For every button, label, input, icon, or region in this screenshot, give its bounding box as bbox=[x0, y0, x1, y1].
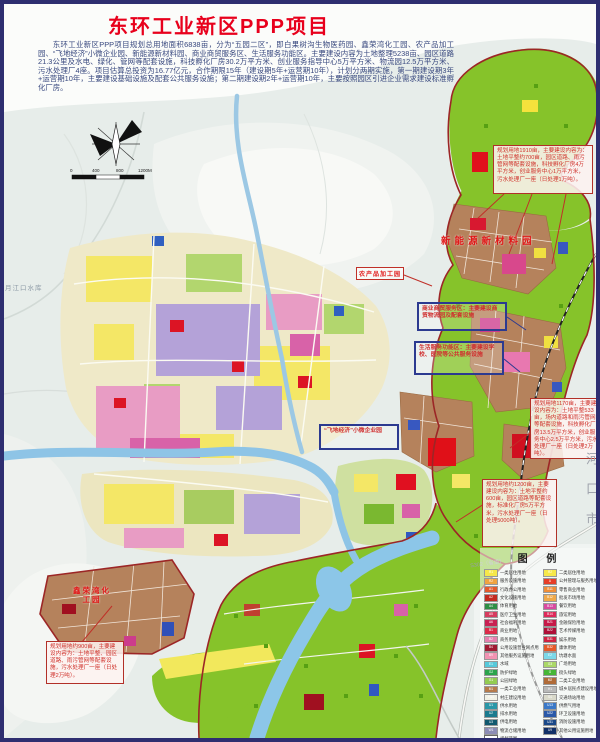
legend-item: M2二类工业用地 bbox=[543, 677, 598, 685]
legend-item: R1一类居住用地 bbox=[484, 569, 539, 577]
scale-tick-800: 800 bbox=[116, 168, 124, 173]
scale-tick-1200: 1200M bbox=[138, 168, 152, 173]
legend-item: E1水域 bbox=[484, 660, 539, 668]
legend-label: 供电用地 bbox=[500, 719, 517, 725]
legend-item: A1行政办公用地 bbox=[484, 586, 539, 594]
legend-item: A6社会福利用地 bbox=[484, 619, 539, 627]
legend-label: 文化设施用地 bbox=[500, 595, 526, 601]
legend-label: 城乡居民点建设用地 bbox=[559, 686, 598, 692]
label-city-vertical: 河口市 bbox=[582, 452, 600, 542]
legend-label: 公用设施营业网点用地 bbox=[500, 645, 539, 651]
legend-label: 交通场站用地 bbox=[559, 695, 585, 701]
legend-label: 社会福利用地 bbox=[500, 620, 526, 626]
legend-swatch: G1 bbox=[484, 677, 498, 685]
legend-swatch: A4 bbox=[484, 603, 498, 611]
legend-swatch: R1 bbox=[484, 569, 498, 577]
legend-label: 其他公用设施用地 bbox=[559, 728, 593, 734]
legend-label: 规划范围 bbox=[500, 736, 517, 742]
legend-swatch: U22 bbox=[543, 710, 557, 718]
legend-item: B22艺术传媒用地 bbox=[543, 627, 598, 635]
legend-item: R2服务设施用地 bbox=[484, 577, 539, 585]
legend-label: 环卫设施用地 bbox=[559, 711, 585, 717]
label-new-energy-park: 新能源新材料园 bbox=[441, 233, 536, 247]
legend: 图 例 R1一类居住用地R2服务设施用地A1行政办公用地A2文化设施用地A4体育… bbox=[484, 550, 598, 742]
legend-label: 行政办公用地 bbox=[500, 587, 526, 593]
legend-swatch: A6 bbox=[484, 619, 498, 627]
planning-map-page: 东环工业新区PPP项目 东环工业新区PPP项目规划总用地面积6838亩，分为“五… bbox=[0, 0, 600, 742]
legend-label: 供水用地 bbox=[500, 703, 517, 709]
annotation-commerce-zone: 商业商贸服务区：主要建设商贸物流园及配套设施 bbox=[417, 302, 507, 331]
legend-swatch: B4 bbox=[484, 644, 498, 652]
legend-swatch: U9 bbox=[543, 727, 557, 735]
legend-swatch: M2 bbox=[543, 677, 557, 685]
legend-swatch: A bbox=[543, 578, 557, 586]
scale-tick-0: 0 bbox=[70, 168, 73, 173]
legend-item: B12批发市场用地 bbox=[543, 594, 598, 602]
legend-swatch: U2 bbox=[484, 710, 498, 718]
legend-swatch: B31 bbox=[543, 636, 557, 644]
legend-swatch: H1 bbox=[543, 686, 557, 694]
legend-swatch: U13 bbox=[543, 702, 557, 710]
legend-label: 批发市场用地 bbox=[559, 595, 585, 601]
legend-label: 餐饮用地 bbox=[559, 603, 576, 609]
legend-column-left: R1一类居住用地R2服务设施用地A1行政办公用地A2文化设施用地A4体育用地A5… bbox=[484, 569, 539, 742]
legend-label: 坑塘水面 bbox=[559, 653, 576, 659]
legend-swatch: B32 bbox=[543, 644, 557, 652]
legend-item: U31消防设施用地 bbox=[543, 718, 598, 726]
legend-label: 物流仓储用地 bbox=[500, 728, 526, 734]
label-reservoir: 月江口水库 bbox=[5, 282, 43, 292]
legend-item: B2商务用地 bbox=[484, 635, 539, 643]
legend-swatch: B2 bbox=[484, 636, 498, 644]
legend-item: A公共管理与服务用地 bbox=[543, 577, 598, 585]
legend-item: G2防护绿地 bbox=[484, 669, 539, 677]
legend-item: U22环卫设施用地 bbox=[543, 710, 598, 718]
legend-label: 排水用地 bbox=[500, 711, 517, 717]
page-title: 东环工业新区PPP项目 bbox=[4, 10, 434, 39]
legend-swatch: H14 bbox=[484, 694, 498, 702]
legend-label: 康体用地 bbox=[559, 645, 576, 651]
legend-item: B32康体用地 bbox=[543, 644, 598, 652]
project-description: 东环工业新区PPP项目规划总用地面积6838亩，分为“五园二区”，即白果树沟生物… bbox=[38, 41, 454, 93]
legend-label: 旅馆用地 bbox=[559, 612, 576, 618]
legend-swatch: B13 bbox=[543, 603, 557, 611]
legend-item: R2二类居住用地 bbox=[543, 569, 598, 577]
legend-swatch: G2 bbox=[484, 669, 498, 677]
legend-swatch: G3 bbox=[543, 661, 557, 669]
legend-swatch: B22 bbox=[543, 627, 557, 635]
callout-east-park: 规划用地1170亩，主要建设内容为：土地平整533亩，场内道路和雨污管网等配套设… bbox=[530, 398, 600, 459]
legend-label: 供燃气用地 bbox=[559, 703, 580, 709]
legend-swatch: B1 bbox=[484, 627, 498, 635]
legend-swatch: E1 bbox=[484, 661, 498, 669]
legend-swatch: R2 bbox=[543, 569, 557, 577]
legend-swatch: A2 bbox=[484, 594, 498, 602]
legend-item: B4公用设施营业网点用地 bbox=[484, 644, 539, 652]
legend-label: 医疗卫生用地 bbox=[500, 612, 526, 618]
scale-bar bbox=[72, 175, 144, 179]
legend-item: B13餐饮用地 bbox=[543, 602, 598, 610]
legend-swatch: M1 bbox=[484, 686, 498, 694]
legend-swatch: B14 bbox=[543, 611, 557, 619]
legend-label: 商业用地 bbox=[500, 628, 517, 634]
legend-item: H1城乡居民点建设用地 bbox=[543, 685, 598, 693]
legend-swatch: W1 bbox=[484, 727, 498, 735]
callout-biomed-park: 规划用地1910亩，主要建设内容为：土地平整约700亩，园区道路、雨污管网等配套… bbox=[493, 145, 593, 194]
legend-item: B1商业用地 bbox=[484, 627, 539, 635]
legend-item: A4体育用地 bbox=[484, 602, 539, 610]
legend-item: S4交通场站用地 bbox=[543, 693, 598, 701]
legend-item: A2文化设施用地 bbox=[484, 594, 539, 602]
legend-swatch: B12 bbox=[543, 594, 557, 602]
legend-label: 一类工业用地 bbox=[500, 686, 526, 692]
legend-item: U9其他公用设施用地 bbox=[543, 727, 598, 735]
scale-tick-400: 400 bbox=[92, 168, 100, 173]
legend-label: 水域 bbox=[500, 661, 509, 667]
legend-swatch: B21 bbox=[543, 619, 557, 627]
legend-item: E2坑塘水面 bbox=[543, 652, 598, 660]
legend-item: B21金融保险用地 bbox=[543, 619, 598, 627]
legend-swatch: R2 bbox=[484, 578, 498, 586]
legend-label: 艺术传媒用地 bbox=[559, 628, 585, 634]
legend-label: 广场用地 bbox=[559, 661, 576, 667]
legend-item: U13供燃气用地 bbox=[543, 702, 598, 710]
legend-swatch: S4 bbox=[543, 694, 557, 702]
legend-label: 服务设施用地 bbox=[500, 578, 526, 584]
legend-swatch: E2 bbox=[543, 652, 557, 660]
legend-swatch: A5 bbox=[484, 611, 498, 619]
legend-item: M1一类工业用地 bbox=[484, 685, 539, 693]
legend-item: B31娱乐用地 bbox=[543, 635, 598, 643]
legend-item: G3广场用地 bbox=[543, 660, 598, 668]
legend-swatch bbox=[484, 735, 498, 742]
legend-label: 娱乐用地 bbox=[559, 637, 576, 643]
legend-item: G1公园绿地 bbox=[484, 677, 539, 685]
legend-label: 金融保险用地 bbox=[559, 620, 585, 626]
legend-label: 一类居住用地 bbox=[500, 570, 526, 576]
legend-item: B11零售商业用地 bbox=[543, 586, 598, 594]
legend-label: 村庄建设用地 bbox=[500, 695, 526, 701]
legend-label: 街头绿地 bbox=[559, 670, 576, 676]
annotation-living-zone: 生活服务功能区：主要建设学校、医院等公共服务设施 bbox=[414, 341, 504, 375]
legend-swatch: B11 bbox=[543, 586, 557, 594]
legend-swatch: U3 bbox=[484, 719, 498, 727]
legend-label: 防护绿地 bbox=[500, 670, 517, 676]
legend-item: U3供电用地 bbox=[484, 718, 539, 726]
legend-item: B9其他服务设施用地 bbox=[484, 652, 539, 660]
legend-item: U1供水用地 bbox=[484, 702, 539, 710]
legend-swatch: A1 bbox=[484, 586, 498, 594]
legend-label: 零售商业用地 bbox=[559, 587, 585, 593]
label-chemical-park: 鑫荣湾化工园 bbox=[72, 586, 112, 605]
legend-label: 消防设施用地 bbox=[559, 719, 585, 725]
legend-column-right: R2二类居住用地A公共管理与服务用地B11零售商业用地B12批发市场用地B13餐… bbox=[543, 569, 598, 742]
legend-label: 公共管理与服务用地 bbox=[559, 578, 598, 584]
legend-label: 公园绿地 bbox=[500, 678, 517, 684]
legend-label: 商务用地 bbox=[500, 637, 517, 643]
legend-label: 二类工业用地 bbox=[559, 678, 585, 684]
label-processing-park: 农产品加工园 bbox=[356, 267, 404, 280]
legend-label: 体育用地 bbox=[500, 603, 517, 609]
annotation-micro-enterprise-park: “飞地经济”小微企业园 bbox=[319, 424, 399, 450]
legend-item: B14旅馆用地 bbox=[543, 610, 598, 618]
legend-item: 规划范围 bbox=[484, 735, 539, 742]
legend-label: 二类居住用地 bbox=[559, 570, 585, 576]
legend-item: A5医疗卫生用地 bbox=[484, 610, 539, 618]
legend-swatch: U1 bbox=[484, 702, 498, 710]
callout-chemical-park: 规划用地约900亩，主要建设内容为：土地平整、园区道路、雨污管网等配套设施，污水… bbox=[46, 641, 124, 684]
legend-item: W1物流仓储用地 bbox=[484, 727, 539, 735]
legend-item: H14村庄建设用地 bbox=[484, 693, 539, 701]
legend-item: U2排水用地 bbox=[484, 710, 539, 718]
legend-label: 其他服务设施用地 bbox=[500, 653, 534, 659]
legend-swatch: B9 bbox=[484, 652, 498, 660]
legend-swatch: U31 bbox=[543, 719, 557, 727]
callout-southeast-park: 规划用地约1200亩，主要建设内容为：土地平整约600亩，园区道路等配套设施，标… bbox=[482, 479, 557, 547]
legend-item: G街头绿地 bbox=[543, 669, 598, 677]
legend-swatch: G bbox=[543, 669, 557, 677]
legend-title: 图 例 bbox=[484, 550, 598, 565]
